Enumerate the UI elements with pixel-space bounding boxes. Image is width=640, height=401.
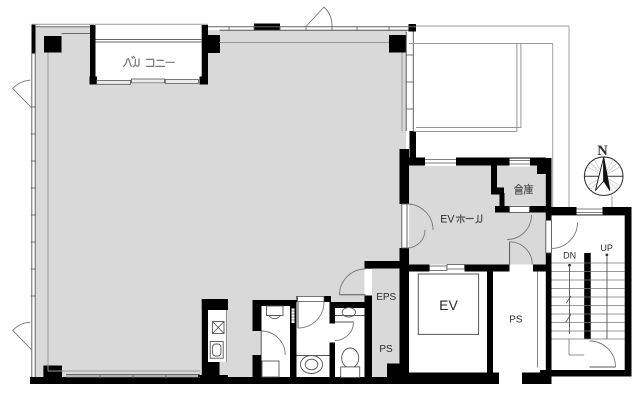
svg-text:PS: PS [379, 344, 393, 355]
svg-text:UP: UP [600, 243, 613, 253]
svg-text:EPS: EPS [376, 292, 396, 303]
svg-text:PS: PS [509, 314, 523, 325]
svg-text:EV: EV [440, 213, 455, 225]
svg-text:EV: EV [439, 297, 458, 313]
svg-text:DN: DN [563, 250, 576, 260]
